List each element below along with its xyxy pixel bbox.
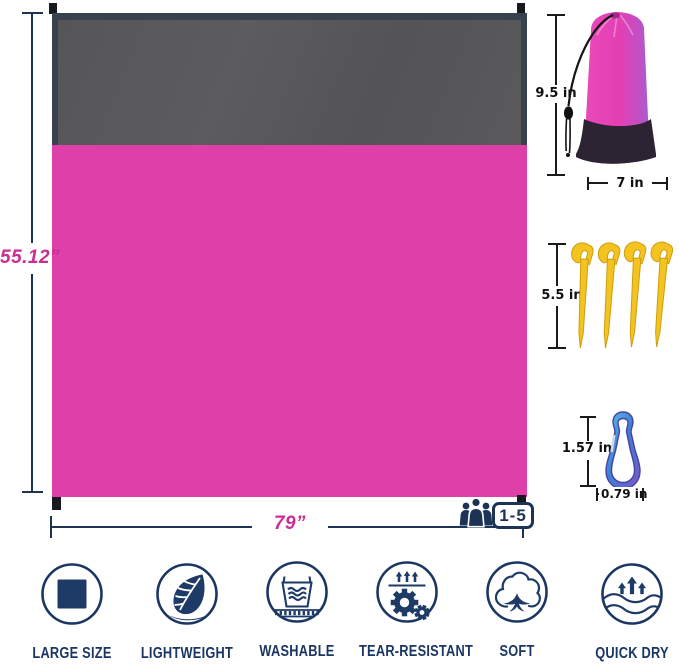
carabiner-dim-line-upper: [587, 416, 589, 441]
bag-width-tick-right: [666, 177, 668, 190]
bag-height-tick-bottom: [547, 174, 565, 176]
square-icon: [40, 562, 104, 626]
gears-icon: [375, 560, 439, 624]
carabiner-dim-tick-bottom: [580, 485, 596, 487]
feature-quick-dry: QUICK DRY: [572, 562, 679, 663]
feature-large-size: LARGE SIZE: [12, 562, 132, 663]
carabiner-width-tick-right: [642, 488, 644, 501]
feature-washable: WASHABLE: [237, 560, 357, 661]
wash-basin-icon: [265, 560, 329, 624]
bag-width-label: 7 in: [608, 176, 652, 191]
cotton-icon: [485, 560, 549, 624]
waves-arrows-icon: [600, 562, 664, 626]
bag-height-line-lower: [555, 103, 557, 176]
feature-tear-resistant: TEAR-RESISTANT: [347, 560, 467, 661]
bag-height-line-upper: [555, 14, 557, 85]
people-icon: [458, 495, 494, 531]
stake-dim-tick-bottom: [548, 347, 566, 349]
capacity-badge: 1-5: [492, 502, 534, 529]
feature-label: LARGE SIZE: [24, 645, 120, 663]
capacity-label: 1-5: [499, 506, 527, 526]
carabiner-width-label: 0.79 in: [599, 487, 647, 501]
height-dim-line-upper: [31, 12, 33, 243]
blanket-corner-loop-bottom-left: [52, 497, 61, 510]
blanket-top-hem: [52, 13, 527, 20]
feature-label: QUICK DRY: [584, 645, 679, 663]
height-dim-tick-bottom: [22, 491, 43, 493]
stake-dim-line-upper: [556, 243, 558, 286]
feature-label: TEAR-RESISTANT: [359, 643, 455, 661]
feature-label: WASHABLE: [249, 643, 345, 661]
width-dim-line-left: [52, 526, 252, 528]
product-infographic: 55.12” 79” 1-5 9.5 in: [0, 0, 679, 664]
feature-soft: SOFT: [457, 560, 577, 661]
height-dim-line-lower: [31, 274, 33, 492]
stake-dim-line-lower: [556, 306, 558, 349]
carabiner-dim-line-lower: [587, 460, 589, 487]
blanket-height-label: 55.12”: [0, 247, 54, 269]
carabiner-illustration: [601, 410, 645, 492]
blanket-pink-body: [52, 145, 527, 497]
feature-label: LIGHTWEIGHT: [139, 645, 235, 663]
blanket-gray-band: [52, 20, 527, 145]
blanket-width-label: 79”: [252, 513, 328, 535]
tent-stakes-illustration: [567, 239, 673, 353]
leaf-icon: [155, 562, 219, 626]
feature-lightweight: LIGHTWEIGHT: [127, 562, 247, 663]
storage-bag-illustration: [558, 6, 676, 168]
feature-label: SOFT: [469, 643, 565, 661]
